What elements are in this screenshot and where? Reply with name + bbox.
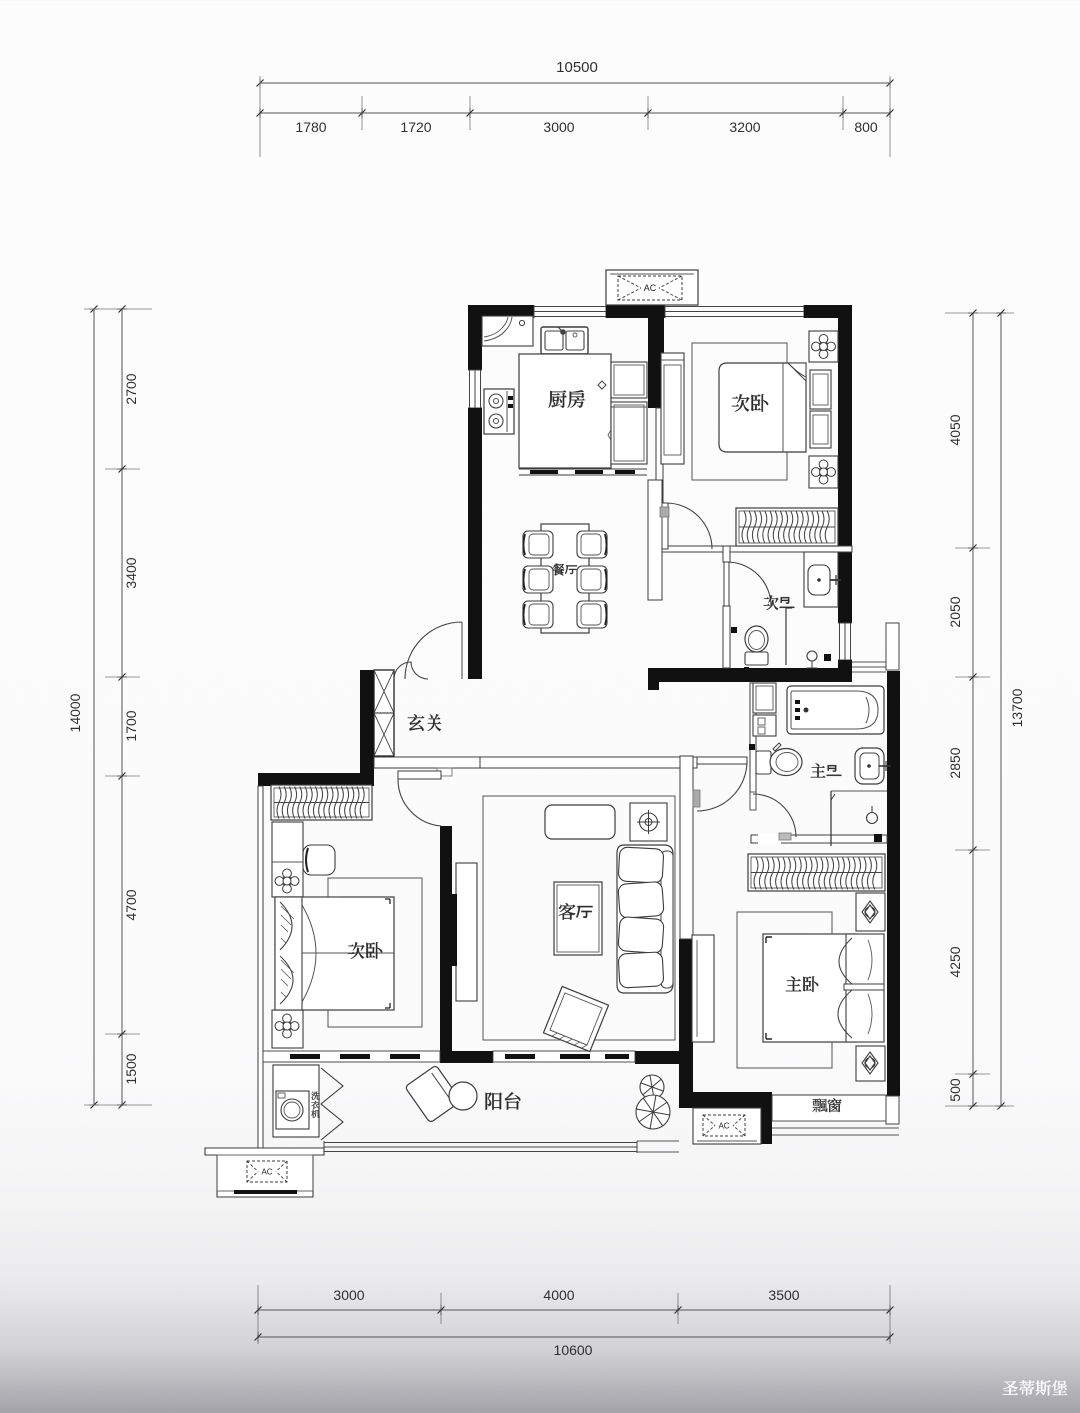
svg-text:10600: 10600	[554, 1342, 593, 1358]
svg-text:13700: 13700	[1009, 688, 1025, 727]
svg-text:2050: 2050	[947, 596, 963, 627]
svg-text:4050: 4050	[947, 414, 963, 445]
svg-text:1720: 1720	[400, 119, 431, 135]
svg-text:1700: 1700	[123, 710, 139, 741]
svg-text:AC: AC	[261, 1167, 272, 1176]
svg-text:4700: 4700	[123, 889, 139, 920]
svg-text:2850: 2850	[947, 747, 963, 778]
svg-text:AC: AC	[644, 283, 657, 293]
svg-text:3500: 3500	[768, 1287, 799, 1303]
svg-text:14000: 14000	[67, 693, 83, 732]
svg-text:3000: 3000	[333, 1287, 364, 1303]
svg-text:3000: 3000	[543, 119, 574, 135]
svg-text:4000: 4000	[543, 1287, 574, 1303]
svg-text:10500: 10500	[556, 59, 598, 76]
svg-text:800: 800	[854, 119, 878, 135]
svg-text:500: 500	[947, 1078, 963, 1102]
svg-text:2700: 2700	[123, 373, 139, 404]
svg-text:4250: 4250	[947, 946, 963, 977]
svg-text:3200: 3200	[729, 119, 760, 135]
svg-text:1500: 1500	[123, 1053, 139, 1084]
svg-text:1780: 1780	[295, 119, 326, 135]
svg-text:3400: 3400	[123, 557, 139, 588]
svg-text:AC: AC	[718, 1121, 729, 1130]
